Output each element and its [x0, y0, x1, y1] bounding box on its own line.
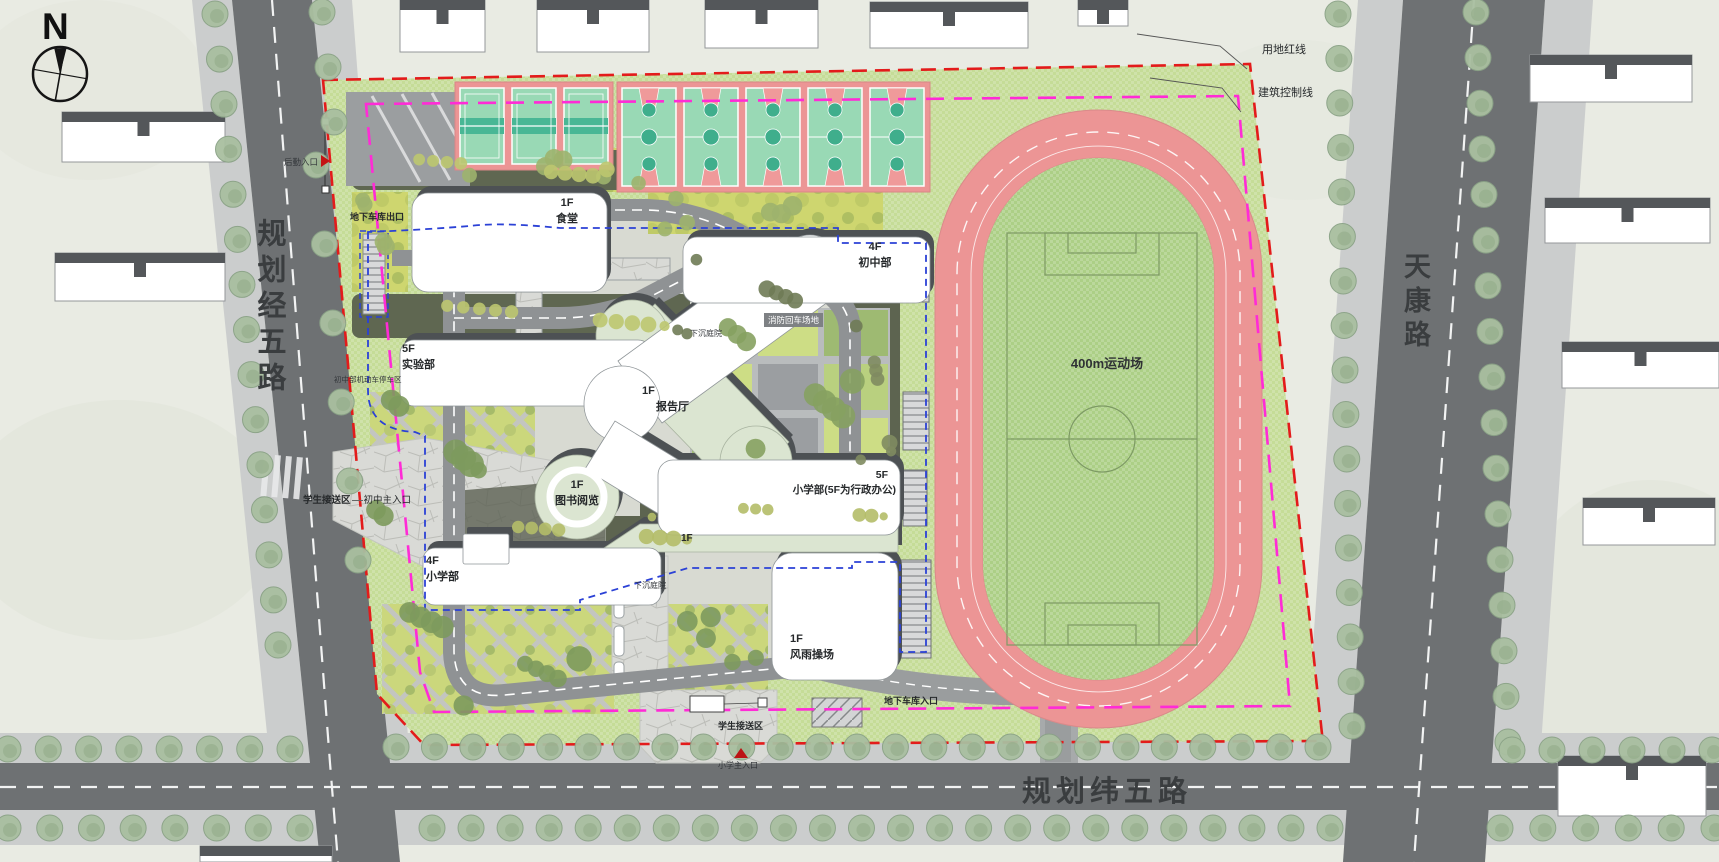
label-garage-entrance: 地下车库入口 — [884, 694, 938, 707]
label-primary: 4F小学部 — [426, 554, 506, 586]
label-south-pickup: 学生接送区 — [718, 719, 763, 732]
label-primary-admin: 5F小学部(5F为行政办公) — [700, 468, 896, 498]
label-indoor-gym: 1F风雨操场 — [790, 632, 880, 664]
label-library: 1F图书阅览 — [532, 478, 622, 510]
road-label-east: 天康路 — [1396, 252, 1435, 354]
label-sunken-courtyard-2: 下沉庭院 — [634, 580, 666, 591]
primary-entrance-arrow-icon — [734, 748, 748, 758]
label-fire-turnaround: 消防回车场地 — [764, 313, 823, 327]
label-junior-parking: 初中部机动车停车区 — [334, 374, 402, 385]
label-garage-exit: 地下车库出口 — [350, 210, 404, 223]
leader-dash — [352, 500, 363, 501]
label-logistics-entrance: 后勤入口 — [284, 156, 318, 168]
road-label-south: 规划纬五路 — [1022, 768, 1192, 810]
label-lecture-hall: 1F报告厅 — [638, 384, 718, 416]
north-label: N — [42, 6, 69, 48]
label-canteen: 1F食堂 — [537, 196, 597, 228]
label-podium-link: 1F — [681, 533, 693, 544]
label-track: 400m运动场 — [1042, 353, 1172, 372]
running-track — [935, 110, 1262, 728]
logistics-entrance-arrow-icon — [321, 155, 330, 167]
site-plan-graphics — [0, 0, 1719, 862]
label-primary-entrance: 小学主入口 — [718, 760, 758, 771]
label-sunken-courtyard-1: 下沉庭院 — [690, 328, 722, 339]
label-junior-high: 4F初中部 — [835, 240, 915, 272]
label-west-gate: 学生接送区初中主入口 — [303, 492, 411, 506]
legend-building-control: 建筑控制线 — [1258, 84, 1313, 100]
label-laboratory: 5F实验部 — [402, 342, 472, 374]
site-plan: N 规划经五路 天康路 规划纬五路 用地红线 建筑控制线 1F食堂 4F初中部 … — [0, 0, 1719, 862]
legend-site-boundary: 用地红线 — [1262, 41, 1306, 57]
road-label-west: 规划经五路 — [248, 218, 290, 398]
